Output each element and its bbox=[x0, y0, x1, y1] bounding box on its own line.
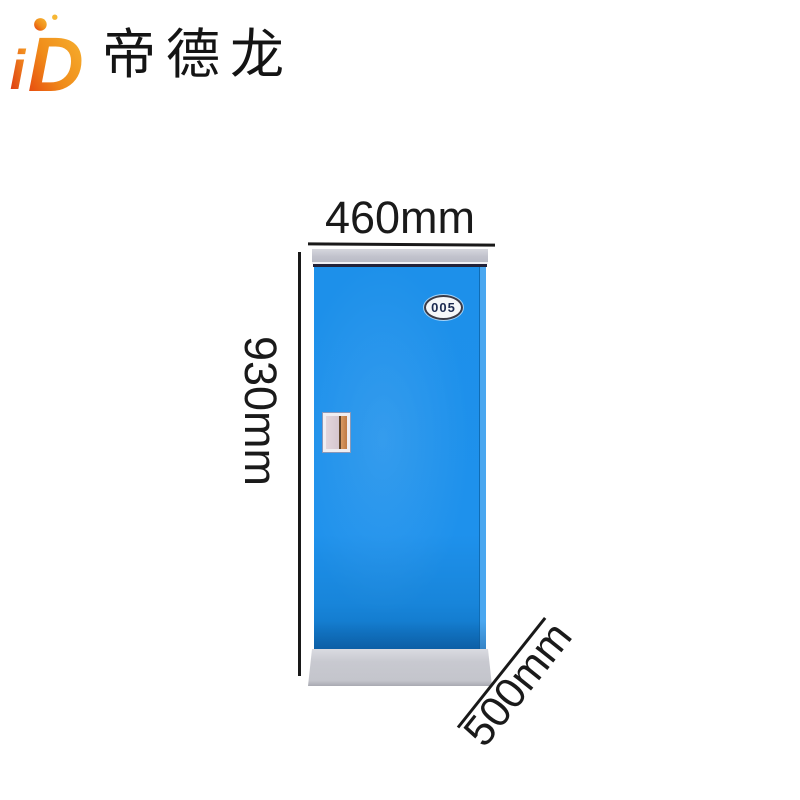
logo-small-dot-icon bbox=[52, 15, 57, 20]
dimension-height-label: 930mm bbox=[234, 311, 286, 511]
handle-recess bbox=[326, 416, 339, 449]
brand-logo-icon: i D bbox=[8, 10, 98, 100]
cabinet-door: 005 bbox=[314, 267, 486, 649]
dimension-width-line bbox=[308, 242, 495, 246]
logo-letter-d: D bbox=[28, 22, 84, 100]
door-handle bbox=[322, 412, 351, 453]
dimension-height-line bbox=[298, 252, 301, 676]
door-sheen bbox=[314, 267, 486, 649]
brand-header: i D 帝德龙 bbox=[8, 10, 294, 100]
brand-name: 帝德龙 bbox=[102, 10, 294, 100]
door-bottom-shadow bbox=[314, 621, 486, 649]
cabinet-base bbox=[308, 649, 492, 686]
cabinet-top-cap bbox=[312, 249, 488, 262]
logo-letter-i: i bbox=[10, 38, 27, 100]
dimension-width-label: 460mm bbox=[300, 192, 500, 244]
handle-grip bbox=[339, 416, 347, 449]
door-number-text: 005 bbox=[431, 300, 456, 315]
door-number-plate: 005 bbox=[424, 295, 463, 320]
door-side-panel bbox=[479, 267, 486, 649]
product-image-canvas: i D 帝德龙 460mm 930mm 005 500mm bbox=[0, 0, 800, 800]
